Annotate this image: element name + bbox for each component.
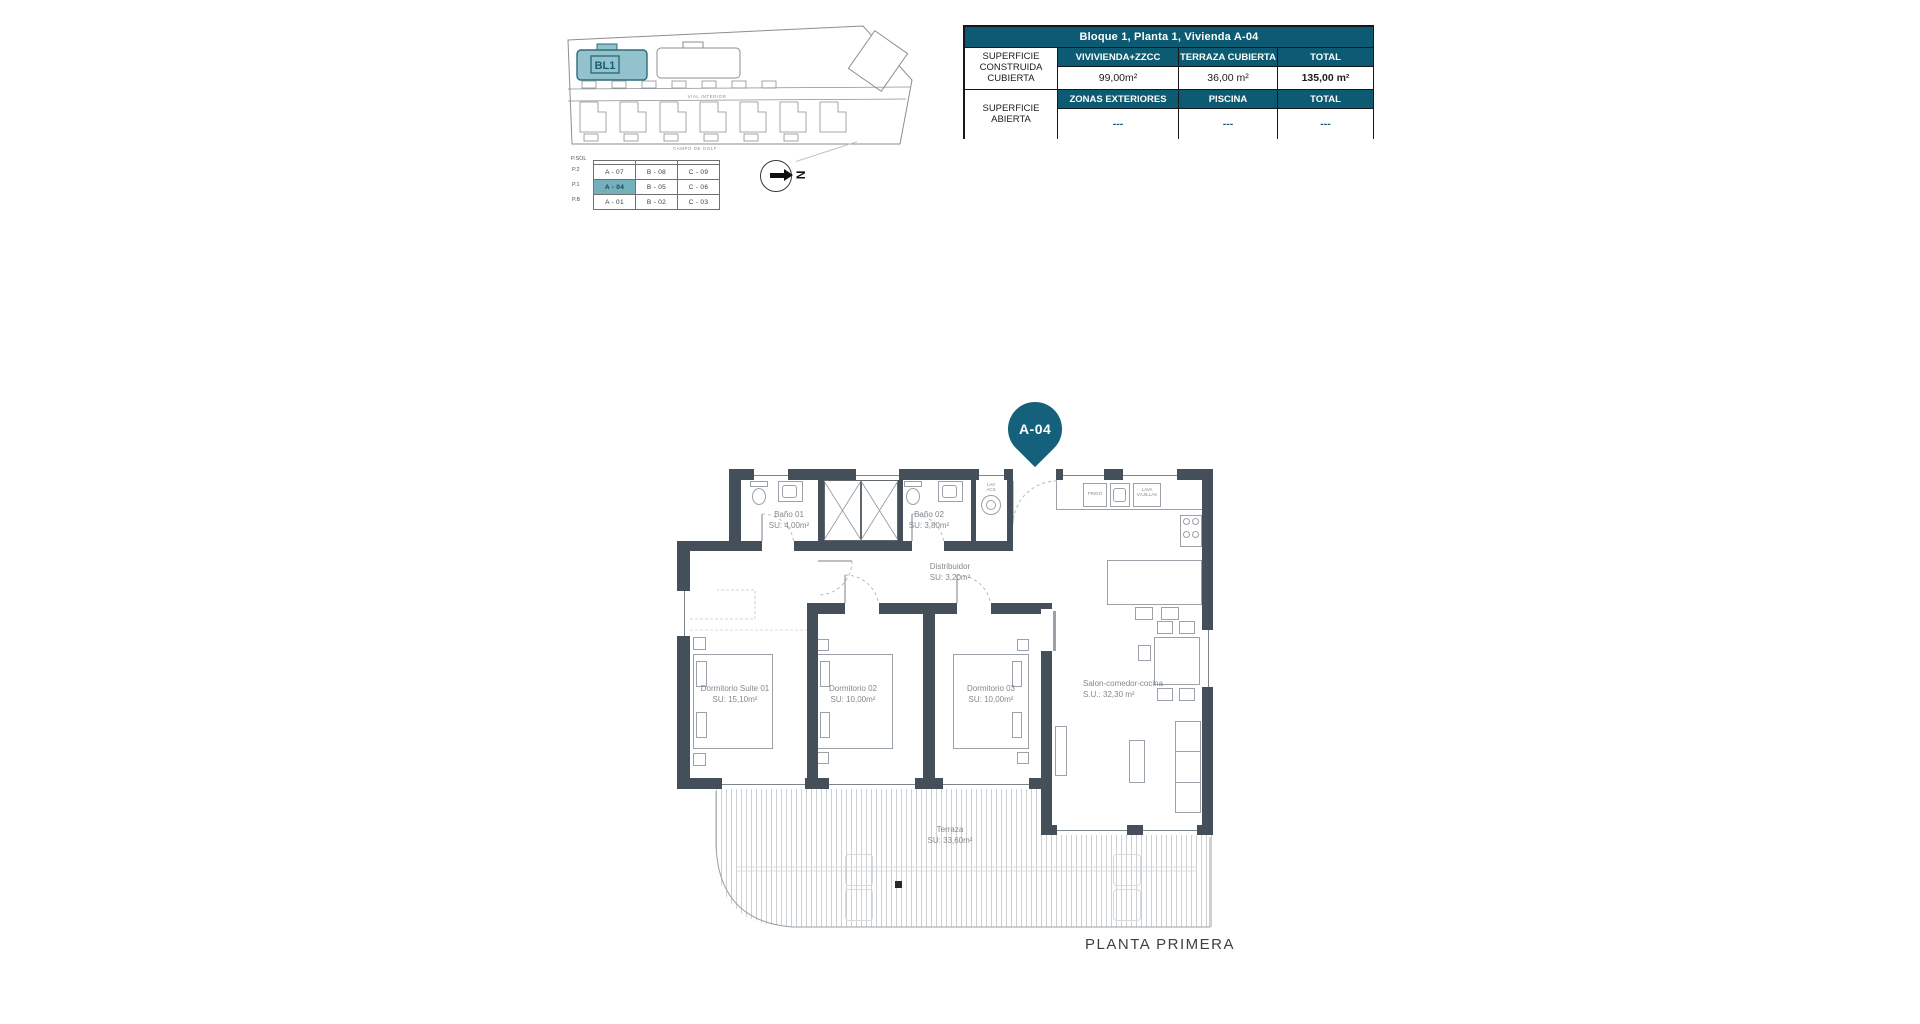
toilet-tank	[750, 481, 768, 487]
wall	[1007, 480, 1013, 541]
window	[856, 469, 899, 480]
washbasin-bowl	[782, 485, 797, 498]
nightstand	[817, 639, 829, 651]
fridge-label: FRIGO	[1083, 491, 1107, 496]
window	[1123, 469, 1177, 480]
unit-table-corner-label: P.SOL	[571, 156, 587, 162]
col-header-terraza: TERRAZA CUBIERTA	[1179, 48, 1277, 66]
block-label: BL1	[595, 60, 616, 72]
room-name: Baño 02	[909, 509, 949, 520]
chair	[1138, 645, 1151, 661]
nightstand	[693, 753, 706, 766]
pillow	[1012, 712, 1022, 738]
dishwasher-label: LAVA VAJILLAS	[1134, 487, 1160, 498]
room-area: SU: 3,80m²	[909, 520, 949, 531]
nightstand	[1017, 639, 1029, 651]
stove-burner	[1192, 518, 1199, 525]
room-name: Baño 01	[769, 509, 809, 520]
wall	[677, 541, 1013, 551]
north-compass-icon: N	[758, 156, 828, 196]
room-label-suite: Dormitorio Suite 01 SU: 15,10m²	[701, 683, 769, 705]
door-opening	[1041, 609, 1052, 651]
col-header-piscina: PISCINA	[1179, 90, 1277, 108]
room-area: S.U.: 32,30 m²	[1083, 689, 1163, 700]
wall	[923, 603, 935, 778]
window	[1063, 469, 1104, 480]
golf-label: CAMPO DE GOLF	[673, 146, 717, 151]
row-group-label-abierta: SUPERFICIE ABIERTA	[965, 90, 1057, 139]
col-header-zonas: ZONAS EXTERIORES	[1058, 90, 1178, 108]
door-opening	[762, 541, 794, 551]
wall	[898, 480, 903, 541]
unit-cell: C - 06	[678, 180, 720, 195]
terrace-door	[829, 778, 915, 789]
wall	[971, 480, 976, 541]
sun-lounger	[1113, 854, 1141, 886]
unit-cell: C - 09	[678, 165, 720, 180]
sofa-cushion-line	[1176, 751, 1200, 752]
entry-opening	[1013, 469, 1056, 480]
pillow	[696, 712, 707, 738]
wall	[807, 603, 818, 778]
value-terraza: 36,00 m²	[1179, 67, 1277, 89]
tv-unit	[1055, 726, 1067, 776]
value-vivienda: 99,00m²	[1058, 67, 1178, 89]
unit-cell-highlighted: A - 04	[594, 180, 636, 195]
room-label-bano02: Baño 02 SU: 3,80m²	[909, 509, 949, 531]
compass-arrow-head	[784, 169, 793, 181]
value-total-2: ---	[1278, 109, 1373, 139]
sun-lounger	[1113, 889, 1141, 921]
nightstand	[817, 752, 829, 764]
room-area: SU: 3,20m²	[930, 572, 970, 583]
chair	[1157, 621, 1173, 634]
washbasin-bowl	[942, 485, 957, 498]
site-block-bl1: BL1	[577, 44, 647, 80]
window	[1143, 825, 1197, 835]
pin-label: A-04	[1019, 421, 1051, 437]
window	[754, 469, 788, 480]
room-area: SU: 10,00m²	[829, 694, 877, 705]
unit-table: P.SOL P.2 P.1 P.B A - 07 B - 08 C - 09 A…	[558, 154, 748, 218]
room-label-terraza: Terraza SU: 33,60m²	[928, 824, 973, 846]
kitchen-counter-edge	[1056, 509, 1203, 510]
wall	[677, 541, 690, 778]
coffee-table	[1129, 740, 1145, 783]
terrace-door	[943, 778, 1029, 789]
plan-caption: PLANTA PRIMERA	[1085, 936, 1235, 953]
closet-dashed-outline	[690, 590, 755, 619]
sliding-door	[1053, 611, 1056, 651]
room-name: Salon-comedor-cocina	[1083, 678, 1163, 689]
stove-burner	[1192, 531, 1199, 538]
room-area: SU: 15,10m²	[701, 694, 769, 705]
door-opening	[912, 541, 944, 551]
window	[979, 469, 1004, 480]
chair	[1179, 688, 1195, 701]
wardrobe	[861, 480, 898, 541]
info-table-title: Bloque 1, Planta 1, Vivienda A-04	[965, 27, 1373, 47]
sofa	[1175, 721, 1201, 813]
room-area: SU: 4,00m²	[769, 520, 809, 531]
wall	[818, 480, 824, 541]
floor-label-p2: P.2	[572, 167, 592, 173]
room-name: Terraza	[928, 824, 973, 835]
value-total-1: 135,00 m²	[1278, 67, 1373, 89]
plan-sheet: BL1 VIAL INTERIOR CAM	[0, 0, 1920, 1024]
room-name: Dormitorio Suite 01	[701, 683, 769, 694]
site-plan: BL1 VIAL INTERIOR CAM	[558, 18, 918, 170]
surface-info-table: Bloque 1, Planta 1, Vivienda A-04 SUPERF…	[963, 25, 1374, 139]
value-piscina: ---	[1179, 109, 1277, 139]
row-group-label-construida: SUPERFICIE CONSTRUIDA CUBIERTA	[965, 48, 1057, 89]
unit-cell: B - 08	[636, 165, 678, 180]
laundry-label: LAV ACS	[976, 482, 1006, 493]
nightstand	[1017, 752, 1029, 764]
sun-lounger	[845, 854, 873, 886]
unit-cell: A - 07	[594, 165, 636, 180]
nightstand	[693, 637, 706, 650]
value-zonas: ---	[1058, 109, 1178, 139]
laundry-label-line2: ACS	[976, 487, 1006, 492]
kitchen-sink-bowl	[1113, 488, 1126, 502]
toilet	[906, 488, 920, 505]
col-header-vivienda: VIVIVIENDA+ZZCC	[1058, 48, 1178, 66]
sun-lounger	[845, 889, 873, 921]
kitchen-counter-edge	[1056, 480, 1057, 510]
sofa-cushion-line	[1176, 782, 1200, 783]
col-header-total-2: TOTAL	[1278, 90, 1373, 108]
window	[1202, 630, 1213, 687]
stove-burner	[1183, 518, 1190, 525]
unit-grid: A - 07 B - 08 C - 09 A - 04 B - 05 C - 0…	[593, 160, 720, 210]
road-label: VIAL INTERIOR	[688, 94, 727, 99]
room-label-dorm03: Dormitorio 03 SU: 10,00m²	[967, 683, 1015, 705]
unit-cell: B - 05	[636, 180, 678, 195]
stool	[1161, 607, 1179, 620]
terrace-door	[722, 778, 805, 789]
compass-arrow	[770, 173, 784, 178]
door-opening	[807, 559, 818, 593]
wall	[729, 469, 741, 551]
floor-label-pb: P.B	[572, 197, 592, 203]
room-name: Dormitorio 02	[829, 683, 877, 694]
toilet-tank	[904, 481, 922, 487]
unit-cell: C - 03	[678, 195, 720, 210]
terrace-drain	[895, 881, 902, 888]
room-label-distribuidor: Distribuidor SU: 3,20m²	[930, 561, 970, 583]
room-name: Distribuidor	[930, 561, 970, 572]
kitchen-island	[1107, 560, 1202, 605]
room-area: SU: 33,60m²	[928, 835, 973, 846]
door-opening	[845, 603, 879, 614]
door-opening	[957, 603, 991, 614]
chair	[1179, 621, 1195, 634]
washing-machine-drum	[986, 500, 996, 510]
room-label-dorm02: Dormitorio 02 SU: 10,00m²	[829, 683, 877, 705]
room-label-salon: Salon-comedor-cocina S.U.: 32,30 m²	[1083, 678, 1163, 700]
wall	[807, 603, 1052, 614]
room-label-bano01: Baño 01 SU: 4,00m²	[769, 509, 809, 531]
window	[677, 591, 690, 636]
floor-label-p1: P.1	[572, 182, 592, 188]
floor-plan: LAV ACS FRIGO LAVA VAJILLAS	[677, 469, 1213, 930]
wardrobe	[824, 480, 861, 541]
room-name: Dormitorio 03	[967, 683, 1015, 694]
stool	[1135, 607, 1153, 620]
unit-location-pin: A-04	[997, 391, 1073, 467]
unit-cell: A - 01	[594, 195, 636, 210]
room-area: SU: 10,00m²	[967, 694, 1015, 705]
terrace-door	[1057, 825, 1127, 835]
stove-burner	[1183, 531, 1190, 538]
pillow	[820, 712, 830, 738]
toilet	[752, 488, 766, 505]
col-header-total-1: TOTAL	[1278, 48, 1373, 66]
unit-cell: B - 02	[636, 195, 678, 210]
north-label: N	[793, 171, 807, 180]
